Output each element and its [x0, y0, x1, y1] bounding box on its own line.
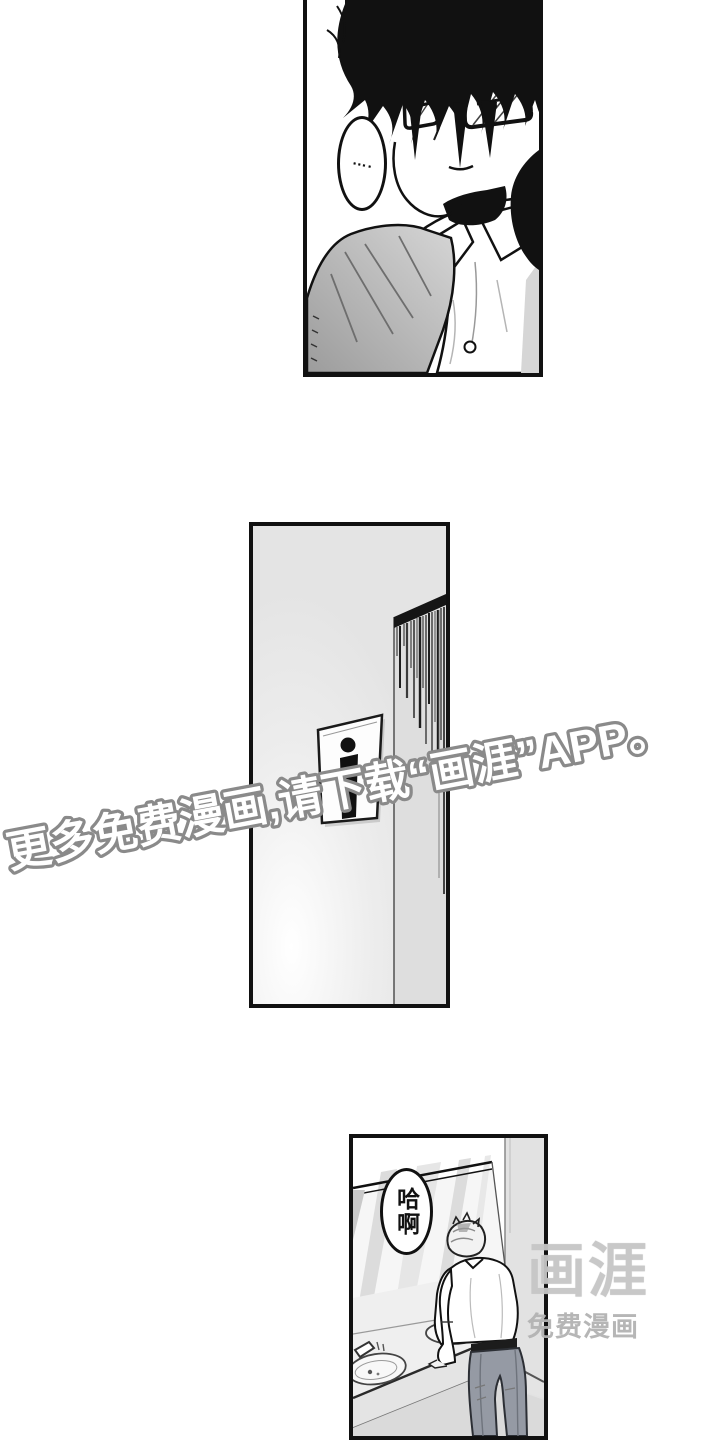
bathroom-scene-drawing: [353, 1138, 544, 1436]
panel-top: ….: [303, 0, 543, 377]
speech-bubble-ellipsis-text: ….: [351, 151, 375, 172]
speech-bubble-sigh: 哈啊: [380, 1168, 433, 1255]
app-logo-title: 画涯: [527, 1241, 649, 1303]
app-logo-subtitle: 免费漫画: [527, 1305, 649, 1344]
panel-middle: [249, 522, 450, 1008]
draped-jacket: [307, 225, 454, 373]
speech-bubble-ellipsis: ….: [337, 116, 387, 211]
light-switch: [318, 715, 385, 827]
panel-bottom: 哈啊: [349, 1134, 548, 1440]
speech-bubble-sigh-text: 哈啊: [394, 1187, 418, 1237]
app-logo: 画涯 免费漫画: [527, 1241, 649, 1344]
light-switch-drawing: [253, 526, 446, 1004]
comic-page[interactable]: { "page": { "background": "#ffffff", "pa…: [0, 0, 720, 1440]
